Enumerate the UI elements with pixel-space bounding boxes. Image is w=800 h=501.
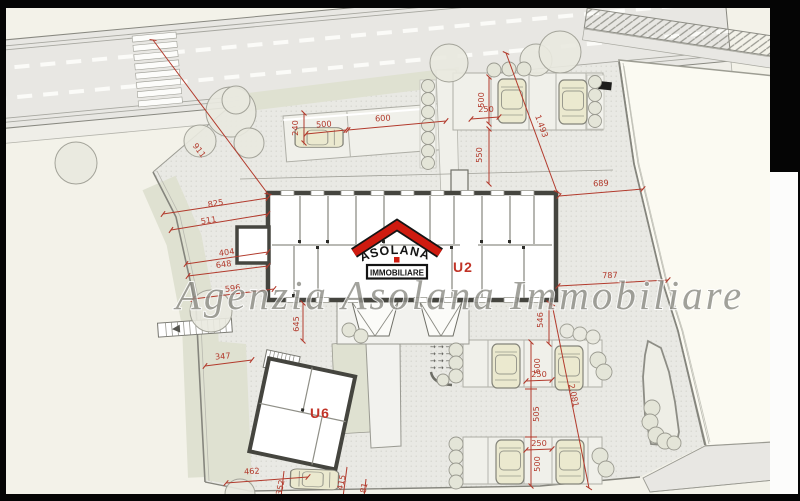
site-plan-image: →→→→ →→→→ →→→→ →→→→ xyxy=(0,0,800,501)
logo-door-icon xyxy=(394,257,400,263)
dim-505: 505 xyxy=(531,406,541,422)
dim-689: 689 xyxy=(593,178,609,189)
bush xyxy=(437,374,449,386)
car xyxy=(496,440,524,484)
car xyxy=(498,79,526,123)
frame-bottom xyxy=(0,494,800,501)
car xyxy=(492,344,520,388)
agency-watermark: Agenzia Asolana Immobiliare xyxy=(173,272,744,318)
dim-645: 645 xyxy=(291,316,301,332)
car xyxy=(555,346,583,390)
site-plan-svg: →→→→ →→→→ →→→→ →→→→ xyxy=(0,0,800,501)
car xyxy=(559,80,587,124)
frame-left xyxy=(0,0,6,501)
frame-top xyxy=(0,0,800,8)
dim-550: 550 xyxy=(474,147,484,163)
dim-600: 600 xyxy=(375,112,391,123)
dim-500-top: 500 xyxy=(316,118,332,129)
frame-top-right xyxy=(770,0,800,172)
dim-240: 240 xyxy=(290,120,300,136)
dim-250-br2: 250 xyxy=(531,438,547,448)
dim-500-br2: 500 xyxy=(532,456,542,472)
dim-250-br1: 250 xyxy=(531,369,547,379)
car xyxy=(556,440,584,484)
dim-462: 462 xyxy=(244,465,260,476)
dim-500-tr: 500 xyxy=(476,92,486,108)
unit-label-u2: U2 xyxy=(453,259,473,275)
logo-subtitle: IMMOBILIARE xyxy=(370,269,425,278)
unit-label-u6: U6 xyxy=(310,405,330,421)
car xyxy=(290,469,339,490)
dim-347: 347 xyxy=(215,350,231,361)
